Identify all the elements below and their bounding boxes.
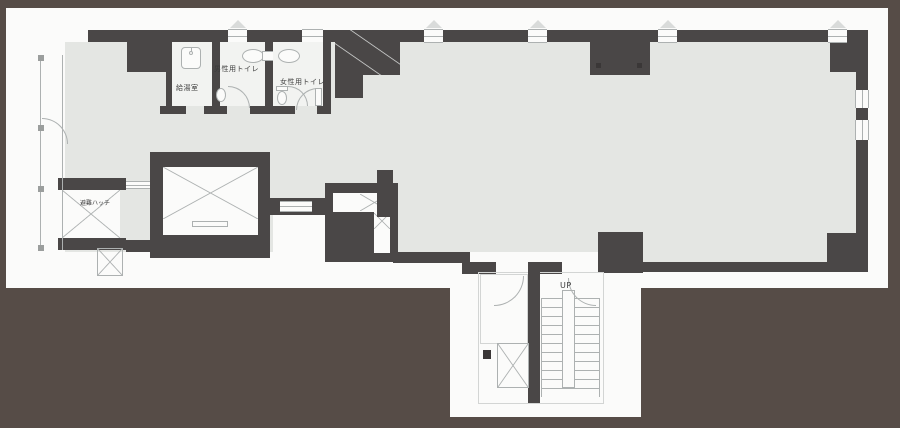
evac-hatch-label: 避難ハッチ [80,200,110,208]
cleaner-sink-fixture [315,88,322,106]
column-mark-2 [637,63,642,68]
railing-tick-3 [38,186,44,192]
toilet-wall-bottom-2 [250,106,295,114]
kitchenette-wall-bottom-left [160,106,186,114]
bottom-wall-mid-1 [393,252,470,263]
bottom-wall-right [643,262,827,272]
stair-divider-wall [528,263,540,403]
wall-chunk-mid [377,170,393,217]
window-top-5 [658,29,677,43]
floor-plan: 給湯室 男性用トイレ 女性用トイレ 避難ハッチ [0,0,900,428]
kitchenette-wall-left [166,42,172,114]
railing-tick-1 [38,55,44,61]
stair-stringer [562,290,575,388]
elevator-door-sill [192,221,228,227]
lobby-floor [273,215,325,258]
left-railing-outer [40,55,41,250]
main-floor-right-lower [643,233,827,262]
column-mark-1 [596,63,601,68]
pillar-block-mid [590,42,650,75]
corner-block-top-right [830,42,868,72]
toilet-fixture-2 [278,49,300,63]
top-wall [88,30,868,42]
balcony-wall-top [58,178,126,190]
window-top-3 [424,29,443,43]
meter-box [483,350,491,359]
womens-toilet-label: 女性用トイレ [280,78,325,86]
kitchenette-label: 給湯室 [176,84,199,92]
faucet-stem [191,47,192,52]
elevator-x-symbol [163,167,258,219]
stair-corner-block [598,232,643,273]
balcony-floor [62,190,120,238]
window-right-1 [855,90,869,108]
window-top-6 [828,29,847,43]
stair-shaft-box [497,343,529,388]
balcony-sliding-door [126,181,150,189]
corner-block-bottom-right [827,233,868,272]
evacuation-hatch-symbol [97,248,123,276]
mens-toilet-label: 男性用トイレ [214,65,259,73]
toilet-wall-bottom-3 [317,106,331,114]
urinal-fixture [216,88,226,102]
kitchenette-wall-bottom-right [204,106,220,114]
pillar-block-left [127,42,167,72]
lobby-window [280,201,312,212]
stall-toilet-bowl [277,91,287,105]
shaft-block-center [335,30,400,75]
shaft-block-center-ext [335,75,363,98]
window-top-1 [228,29,247,43]
left-railing-inner [62,55,63,250]
window-top-4 [528,29,547,43]
stairs-up-label: UP [560,282,572,290]
toilet-wall-bottom-1 [220,106,227,114]
kitchenette-wall-right [212,42,220,114]
railing-tick-4 [38,245,44,251]
window-right-2 [855,120,869,140]
window-top-2 [302,29,323,43]
toilet-fixture-1 [242,49,264,63]
